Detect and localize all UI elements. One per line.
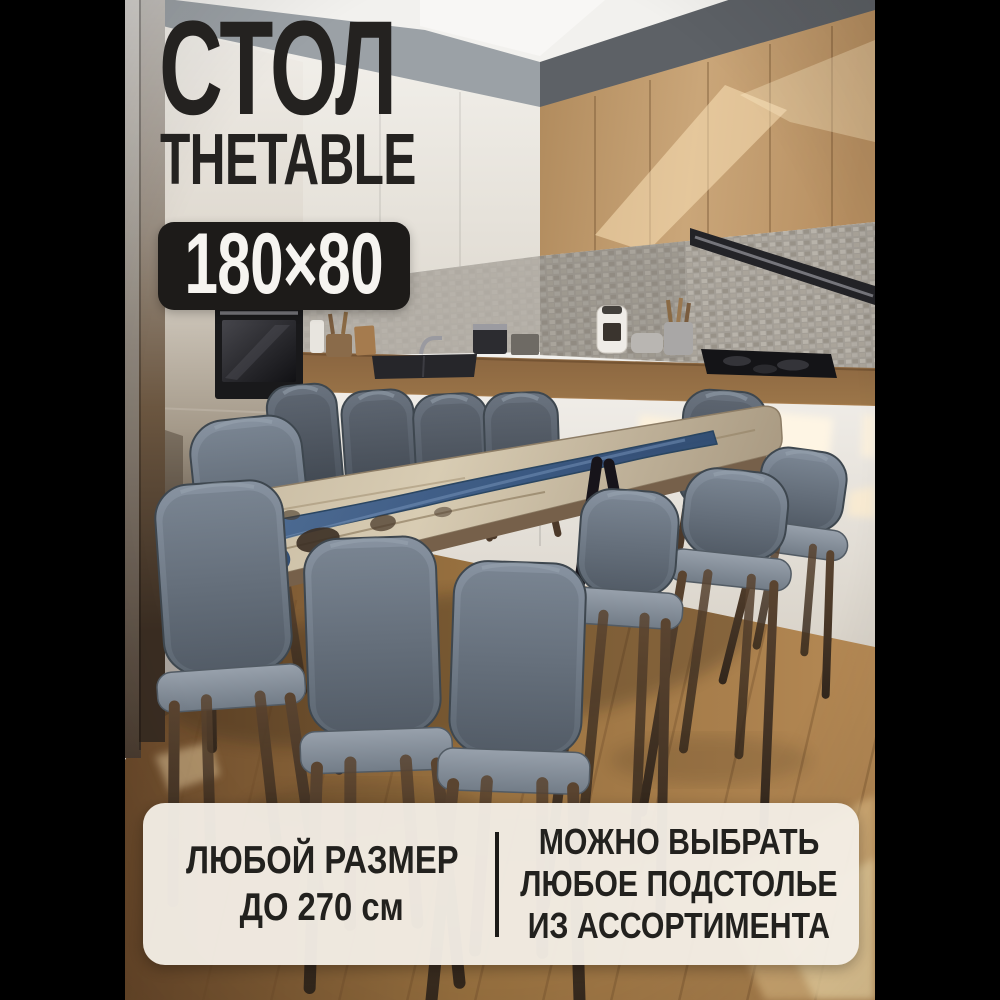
banner-right-line3: ИЗ АССОРТИМЕНТА xyxy=(528,908,830,944)
banner-left-line1: ЛЮБОЙ РАЗМЕР xyxy=(186,841,459,880)
banner-right-column: МОЖНО ВЫБРАТЬ ЛЮБОЕ ПОДСТОЛЬЕ ИЗ АССОРТИ… xyxy=(511,803,847,965)
size-badge: 180×80 xyxy=(158,222,410,310)
banner-right-line1: МОЖНО ВЫБРАТЬ xyxy=(539,824,820,860)
info-banner: ЛЮБОЙ РАЗМЕР ДО 270 см МОЖНО ВЫБРАТЬ ЛЮБ… xyxy=(143,803,859,965)
banner-left-column: ЛЮБОЙ РАЗМЕР ДО 270 см xyxy=(161,803,483,965)
right-black-bar xyxy=(875,0,1000,1000)
left-black-bar xyxy=(0,0,125,1000)
banner-left-line2: ДО 270 см xyxy=(240,888,404,927)
product-title: СТОЛ xyxy=(159,2,396,136)
brand-name: THETABLE xyxy=(160,124,416,196)
banner-divider xyxy=(495,832,499,937)
banner-right-line2: ЛЮБОЕ ПОДСТОЛЬЕ xyxy=(520,866,837,902)
product-image-card: СТОЛ THETABLE 180×80 ЛЮБОЙ РАЗМЕР ДО 270… xyxy=(0,0,1000,1000)
size-badge-text: 180×80 xyxy=(185,221,383,311)
